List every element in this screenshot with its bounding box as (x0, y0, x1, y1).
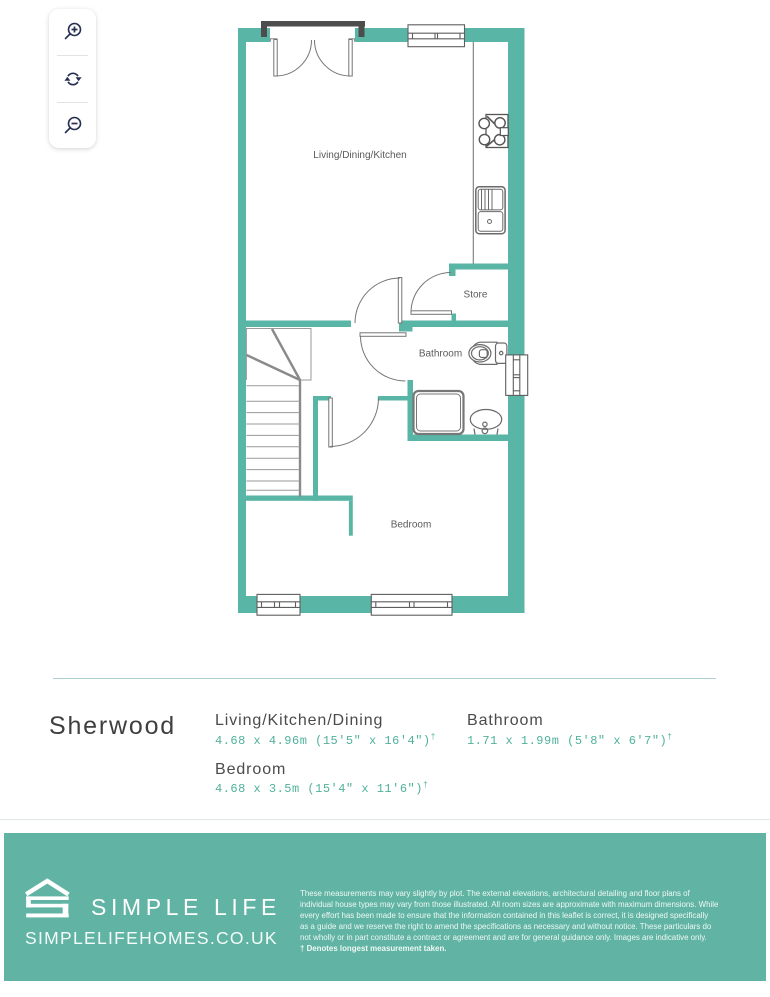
svg-text:Bedroom: Bedroom (391, 520, 432, 531)
svg-text:Store: Store (464, 290, 488, 301)
svg-text:Bathroom: Bathroom (419, 349, 462, 360)
svg-text:Living/Dining/Kitchen: Living/Dining/Kitchen (313, 150, 406, 161)
